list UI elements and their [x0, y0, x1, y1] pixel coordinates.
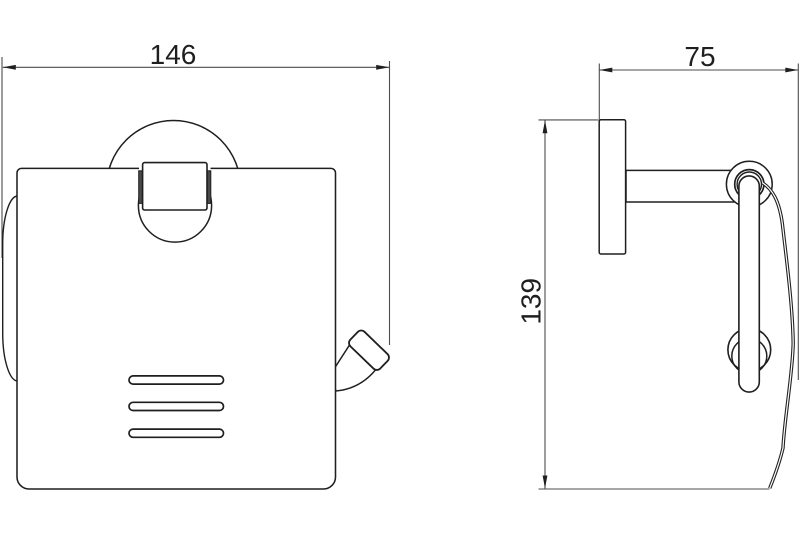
svg-text:139: 139	[516, 278, 547, 325]
svg-text:146: 146	[150, 39, 197, 70]
svg-text:75: 75	[684, 41, 715, 72]
